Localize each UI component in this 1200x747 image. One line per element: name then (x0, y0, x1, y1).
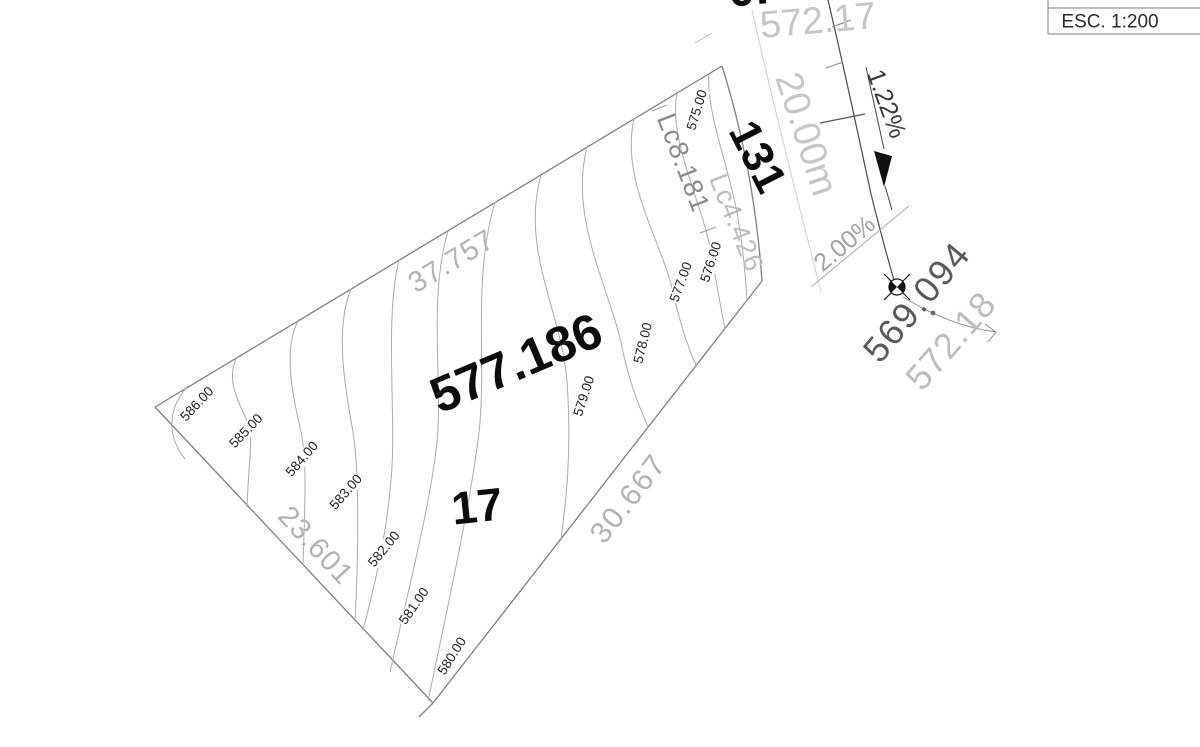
dim-tick-3 (820, 114, 865, 123)
bench-leader-curve (903, 297, 996, 332)
dim-tick-1 (832, 20, 851, 27)
contour-line-585 (232, 357, 250, 507)
title-block-lines (1048, 0, 1200, 34)
cross-grade-line (811, 206, 909, 287)
drawing-linework (0, 0, 1200, 747)
lot-corner-overshoot (419, 703, 433, 717)
dim-tick-2 (826, 62, 843, 68)
spot-elev-dash (695, 33, 712, 43)
grade-arrowhead (874, 151, 892, 187)
contour-line-581 (390, 231, 448, 672)
curve-dash-2 (700, 227, 716, 233)
street-edge-line (828, 0, 896, 287)
contour-line-583 (342, 289, 357, 622)
contour-line-576 (675, 93, 725, 329)
grade-leader-line (866, 67, 884, 149)
curve-dash-1 (652, 105, 667, 111)
bench-leader-arrow (985, 324, 996, 342)
contour-line-582 (363, 260, 399, 630)
lot-boundary (155, 66, 762, 717)
street-centerline (752, 10, 821, 292)
bench-leader-dot (931, 311, 936, 316)
contour-line-586 (172, 386, 188, 459)
contour-line-584 (290, 321, 305, 566)
lot-edge-nw (155, 66, 722, 407)
lot-edge-se (433, 281, 762, 703)
contour-line-575 (709, 74, 747, 300)
contour-line-577 (631, 119, 696, 365)
contour-lines (172, 74, 747, 701)
contour-line-579 (535, 175, 569, 539)
lot-edge-sw (155, 407, 433, 703)
street-linework (652, 0, 996, 342)
contour-line-580 (428, 202, 495, 701)
benchmark-symbol (884, 274, 910, 300)
grade-leader-tail (885, 186, 892, 210)
site-plan-canvas: 586.00 585.00 584.00 583.00 582.00 581.0… (0, 0, 1200, 747)
